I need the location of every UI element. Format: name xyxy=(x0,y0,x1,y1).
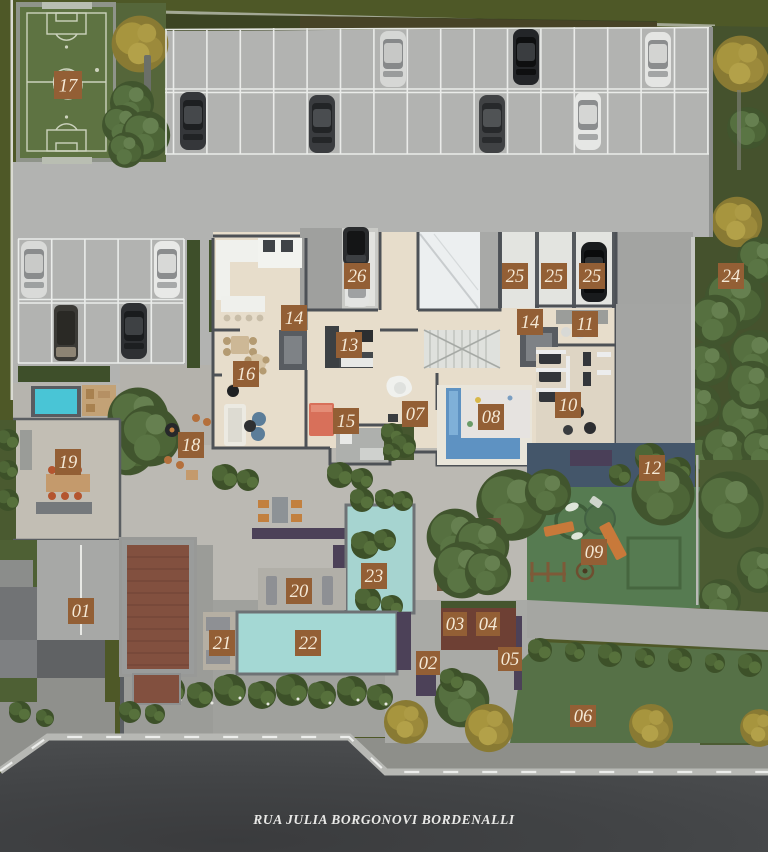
svg-text:15: 15 xyxy=(337,412,356,432)
svg-text:RUA JULIA BORGONOVI BORDENALLI: RUA JULIA BORGONOVI BORDENALLI xyxy=(252,812,515,827)
svg-text:19: 19 xyxy=(59,453,78,473)
svg-text:09: 09 xyxy=(585,543,604,563)
svg-text:11: 11 xyxy=(576,315,593,335)
svg-text:10: 10 xyxy=(559,396,578,416)
svg-text:18: 18 xyxy=(182,436,201,456)
svg-text:01: 01 xyxy=(72,602,91,622)
svg-text:24: 24 xyxy=(722,267,741,287)
svg-text:21: 21 xyxy=(213,634,232,654)
svg-text:02: 02 xyxy=(419,654,438,674)
svg-text:26: 26 xyxy=(348,267,367,287)
svg-text:14: 14 xyxy=(521,313,540,333)
svg-text:23: 23 xyxy=(365,567,384,587)
svg-text:12: 12 xyxy=(643,459,662,479)
svg-text:13: 13 xyxy=(340,336,359,356)
svg-text:14: 14 xyxy=(285,309,304,329)
svg-text:08: 08 xyxy=(482,408,501,428)
svg-text:25: 25 xyxy=(545,267,564,287)
svg-text:06: 06 xyxy=(574,707,593,727)
svg-text:16: 16 xyxy=(237,365,256,385)
svg-text:03: 03 xyxy=(446,615,465,635)
svg-text:05: 05 xyxy=(501,650,520,670)
svg-text:25: 25 xyxy=(583,267,602,287)
svg-text:20: 20 xyxy=(290,582,309,602)
svg-text:25: 25 xyxy=(506,267,525,287)
svg-text:04: 04 xyxy=(479,615,498,635)
svg-text:07: 07 xyxy=(406,405,425,425)
svg-text:17: 17 xyxy=(59,77,78,97)
svg-text:22: 22 xyxy=(299,634,318,654)
